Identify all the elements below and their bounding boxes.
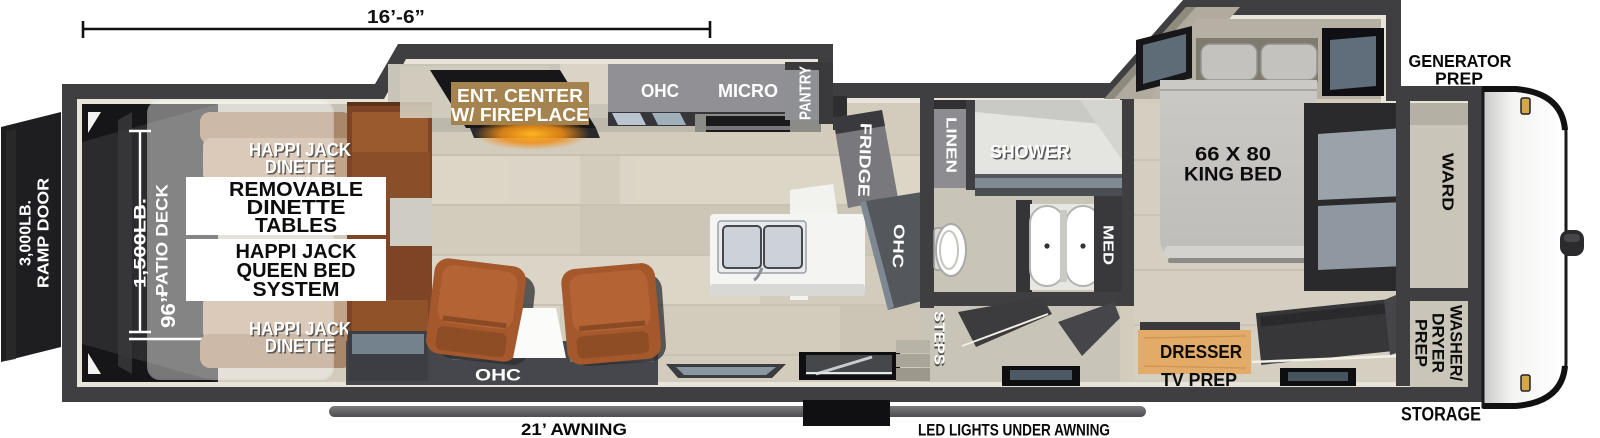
svg-text:LINEN: LINEN [943,117,960,173]
svg-text:KING BED: KING BED [1184,165,1282,186]
svg-text:SYSTEM: SYSTEM [253,279,340,301]
svg-text:DRESSER: DRESSER [1160,342,1242,362]
svg-text:RAMP DOOR: RAMP DOOR [36,178,53,288]
svg-text:DINETTE: DINETTE [265,336,335,356]
svg-text:PREP: PREP [1435,69,1483,89]
svg-text:TV PREP: TV PREP [1161,370,1237,390]
svg-text:21’ AWNING: 21’ AWNING [521,421,627,438]
svg-text:WASHER/: WASHER/ [1447,305,1466,381]
svg-text:1,500LB.: 1,500LB. [131,198,150,288]
svg-text:PANTRY: PANTRY [798,66,815,120]
svg-text:TABLES: TABLES [255,215,337,237]
svg-text:OHC: OHC [641,81,679,101]
svg-text:OHC: OHC [475,366,521,385]
svg-text:STORAGE: STORAGE [1401,405,1481,426]
svg-text:W/ FIREPLACE: W/ FIREPLACE [451,105,589,125]
svg-text:STEPS: STEPS [931,311,948,365]
svg-text:3,000LB.: 3,000LB. [18,200,35,266]
svg-text:MICRO: MICRO [718,81,778,101]
svg-text:16’-6”: 16’-6” [367,7,425,27]
svg-text:MED: MED [1100,225,1117,265]
svg-text:PREP: PREP [1412,319,1431,367]
svg-text:ENT. CENTER: ENT. CENTER [457,86,583,106]
svg-text:SHOWER: SHOWER [990,142,1070,162]
svg-text:DINETTE: DINETTE [265,157,335,177]
svg-text:WARD: WARD [1439,153,1456,211]
svg-text:66 X 80: 66 X 80 [1195,145,1271,166]
svg-text:LED LIGHTS UNDER AWNING: LED LIGHTS UNDER AWNING [918,421,1110,438]
svg-text:FRIDGE: FRIDGE [854,123,874,198]
svg-text:OHC: OHC [889,224,908,269]
